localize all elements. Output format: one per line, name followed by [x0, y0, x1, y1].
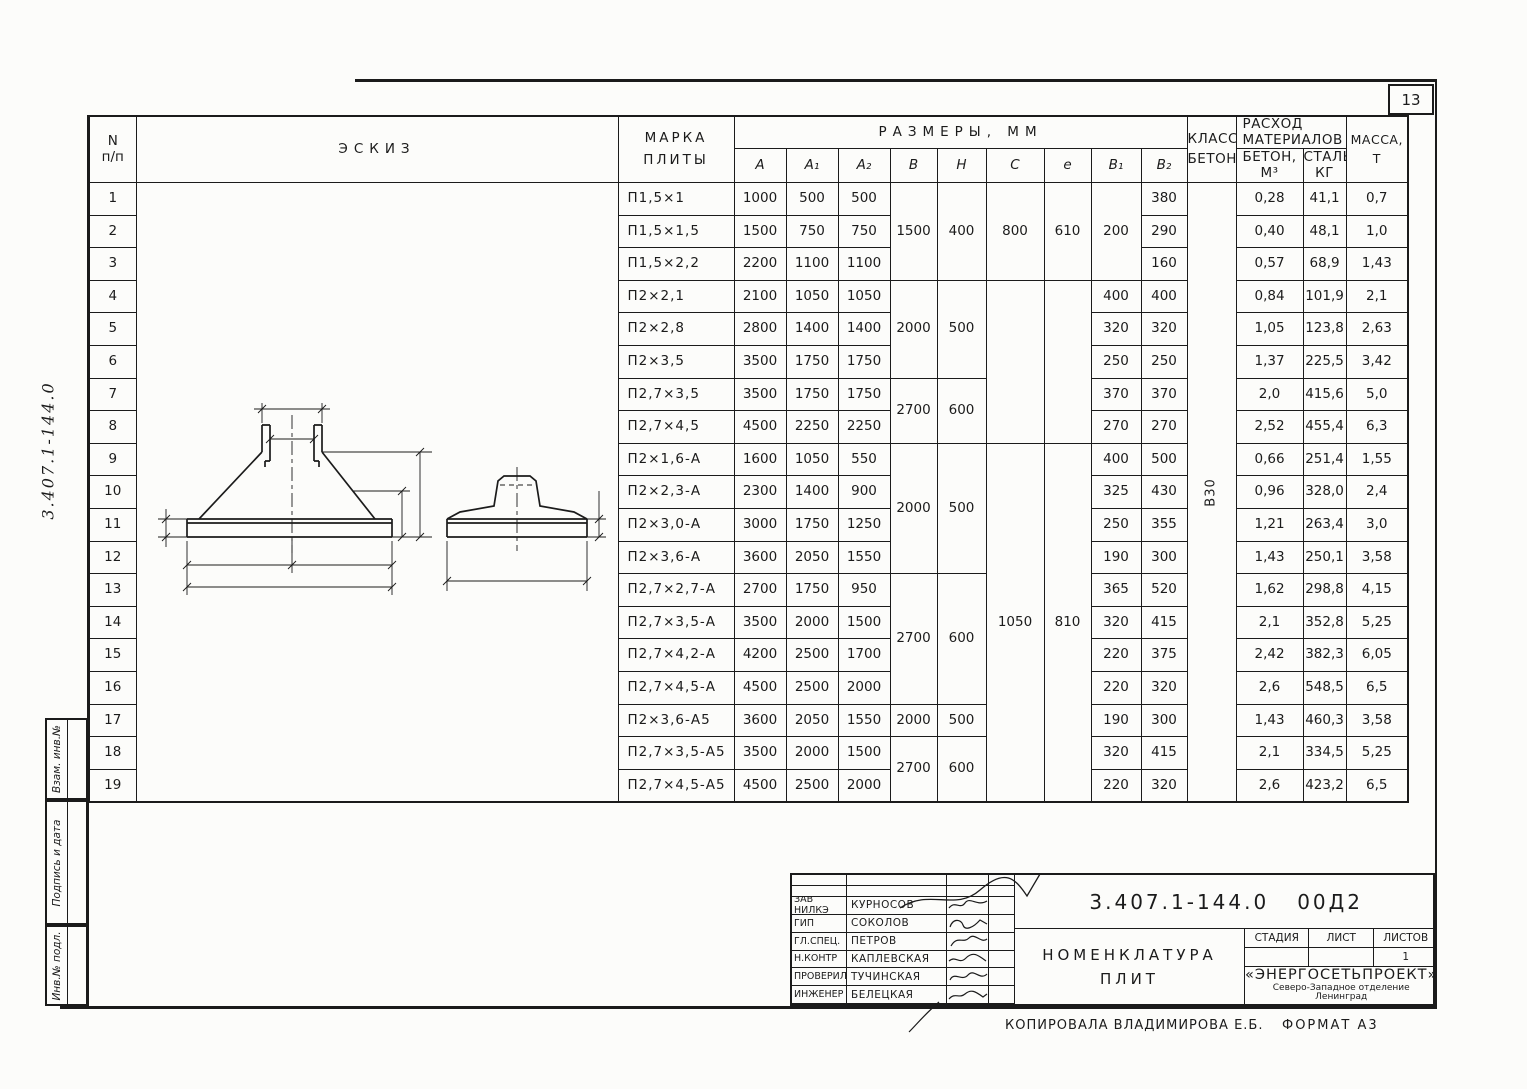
- cell-e: [1044, 280, 1091, 443]
- cell-n: 11: [89, 508, 136, 541]
- signature-role: Зав НИЛКЭ: [792, 897, 847, 915]
- signature-icon: [947, 933, 989, 951]
- header-sketch: Эскиз: [136, 116, 618, 183]
- cell-B2: 300: [1141, 541, 1187, 574]
- cell-A2: 550: [838, 443, 890, 476]
- cell-steel: 298,8: [1303, 574, 1346, 607]
- signature-icon: [947, 915, 989, 933]
- document-number: 3.407.1-144.0 00Д2: [1015, 875, 1437, 929]
- signature-icon: [947, 951, 989, 969]
- cell-B2: 320: [1141, 671, 1187, 704]
- header-mark-line2: плиты: [619, 153, 734, 169]
- cell-n: 17: [89, 704, 136, 737]
- cell-conc: 2,0: [1236, 378, 1303, 411]
- signature-role: ГИП: [792, 915, 847, 933]
- cell-B2: 500: [1141, 443, 1187, 476]
- stamp-label-cell: Инв.№ подл.: [47, 927, 68, 1004]
- cell-conc: 0,66: [1236, 443, 1303, 476]
- cell-n: 4: [89, 280, 136, 313]
- side-code: 3.407.1-144.0: [8, 360, 88, 540]
- empty-cell: [989, 915, 1014, 933]
- signature-role: Н.контр: [792, 951, 847, 969]
- stamp-label: Взам. инв.№: [51, 725, 63, 793]
- cell-H: 500: [937, 280, 986, 378]
- format-note: Формат А3: [1282, 1018, 1379, 1033]
- signature-icon: [947, 897, 989, 915]
- stamp-empty-cell: [68, 720, 86, 798]
- cell-A2: 1500: [838, 737, 890, 770]
- cell-steel: 548,5: [1303, 671, 1346, 704]
- cell-n: 15: [89, 639, 136, 672]
- empty-cell: [847, 886, 947, 897]
- cell-B2: 430: [1141, 476, 1187, 509]
- cell-B2: 415: [1141, 737, 1187, 770]
- cell-n: 9: [89, 443, 136, 476]
- stamp-box-vzam: Взам. инв.№: [45, 718, 88, 800]
- cell-steel: 352,8: [1303, 606, 1346, 639]
- cell-conc: 2,1: [1236, 737, 1303, 770]
- cell-mass: 6,3: [1346, 411, 1408, 444]
- cell-e: 610: [1044, 183, 1091, 281]
- header-consumption-line1: Расход: [1237, 117, 1346, 133]
- cell-conc: 0,28: [1236, 183, 1303, 216]
- cell-mark: П1,5×2,2: [618, 248, 734, 281]
- cell-A1: 500: [786, 183, 838, 216]
- cell-A1: 1750: [786, 378, 838, 411]
- sheet-value: [1309, 948, 1373, 966]
- header-consumption-line2: материалов: [1237, 133, 1346, 149]
- cell-B1: 220: [1091, 769, 1141, 802]
- cell-conc: 1,05: [1236, 313, 1303, 346]
- cell-conc: 2,6: [1236, 769, 1303, 802]
- cell-mass: 6,5: [1346, 671, 1408, 704]
- drawing-title-line2: плит: [1100, 970, 1159, 988]
- cell-A1: 1100: [786, 248, 838, 281]
- header-col-B2: В₂: [1141, 149, 1187, 183]
- cell-mass: 3,58: [1346, 541, 1408, 574]
- cell-A2: 950: [838, 574, 890, 607]
- cell-A2: 900: [838, 476, 890, 509]
- cell-H: 500: [937, 443, 986, 573]
- header-mass-line1: Масса,: [1347, 133, 1408, 147]
- cell-A: 2300: [734, 476, 786, 509]
- cell-A: 4500: [734, 769, 786, 802]
- cell-conc: 1,21: [1236, 508, 1303, 541]
- cell-A1: 1400: [786, 313, 838, 346]
- cell-B: 2000: [890, 704, 937, 737]
- frame-top-line: [355, 79, 1437, 82]
- cell-A1: 2000: [786, 606, 838, 639]
- cell-C: [986, 280, 1044, 443]
- signature-icon: [947, 986, 989, 1004]
- cell-mark: П2,7×3,5-А5: [618, 737, 734, 770]
- cell-B1: 220: [1091, 671, 1141, 704]
- header-class-line1: Класс: [1188, 132, 1236, 148]
- cell-A1: 2050: [786, 541, 838, 574]
- empty-cell: [947, 875, 989, 886]
- cell-A2: 2000: [838, 769, 890, 802]
- cell-A1: 2500: [786, 769, 838, 802]
- cell-mark: П2,7×3,5: [618, 378, 734, 411]
- cell-B2: 290: [1141, 215, 1187, 248]
- header-steel: Сталь, кг: [1303, 149, 1346, 183]
- document-code: 3.407.1-144.0: [1089, 890, 1269, 914]
- empty-cell: [989, 968, 1014, 986]
- cell-conc: 0,96: [1236, 476, 1303, 509]
- plate-nomenclature-table: N п/п Эскиз Марка плиты Размеры, мм Клас…: [88, 115, 1409, 803]
- empty-cell: [989, 886, 1014, 897]
- cell-B1: 400: [1091, 443, 1141, 476]
- cell-H: 400: [937, 183, 986, 281]
- cell-mark: П2,7×4,5-А: [618, 671, 734, 704]
- stage-value-row: 1: [1245, 948, 1437, 967]
- cell-mark: П2×2,1: [618, 280, 734, 313]
- cell-B: 2000: [890, 443, 937, 573]
- cell-B2: 300: [1141, 704, 1187, 737]
- cell-mass: 0,7: [1346, 183, 1408, 216]
- cell-mass: 3,0: [1346, 508, 1408, 541]
- cell-A2: 1500: [838, 606, 890, 639]
- frame-bottom-line: [60, 1006, 1437, 1009]
- cell-B1: 190: [1091, 541, 1141, 574]
- cell-steel: 334,5: [1303, 737, 1346, 770]
- cell-n: 2: [89, 215, 136, 248]
- cell-B2: 355: [1141, 508, 1187, 541]
- cell-conc: 2,52: [1236, 411, 1303, 444]
- cell-e: 810: [1044, 443, 1091, 802]
- cell-steel: 41,1: [1303, 183, 1346, 216]
- signature-name: Соколов: [847, 915, 947, 933]
- cell-B1: 320: [1091, 737, 1141, 770]
- cell-conc: 1,43: [1236, 704, 1303, 737]
- title-block-right: 3.407.1-144.0 00Д2 Номенклатура плит Ста…: [1015, 875, 1437, 1004]
- signature-name: Тучинская: [847, 968, 947, 986]
- cell-B2: 270: [1141, 411, 1187, 444]
- cell-mark: П2×2,8: [618, 313, 734, 346]
- header-num-line2: п/п: [90, 150, 136, 166]
- cell-n: 10: [89, 476, 136, 509]
- cell-A1: 2000: [786, 737, 838, 770]
- cell-conc: 2,6: [1236, 671, 1303, 704]
- cell-B1: 370: [1091, 378, 1141, 411]
- cell-B2: 370: [1141, 378, 1187, 411]
- empty-cell: [989, 933, 1014, 951]
- cell-A2: 500: [838, 183, 890, 216]
- cell-B: 2700: [890, 574, 937, 704]
- cell-A1: 2500: [786, 671, 838, 704]
- header-col-C: С: [986, 149, 1044, 183]
- cell-A: 3600: [734, 541, 786, 574]
- empty-cell: [989, 875, 1014, 886]
- cell-conc: 0,84: [1236, 280, 1303, 313]
- cell-mark: П1,5×1: [618, 183, 734, 216]
- organization-name: «ЭНЕРГОСЕТЬПРОЕКТ»: [1245, 968, 1437, 984]
- table-row: 1: [89, 183, 1408, 216]
- cell-A2: 2250: [838, 411, 890, 444]
- cell-B2: 320: [1141, 313, 1187, 346]
- cell-B: 2000: [890, 280, 937, 378]
- stamp-label-cell: Взам. инв.№: [47, 720, 68, 798]
- empty-cell: [847, 875, 947, 886]
- cell-steel: 48,1: [1303, 215, 1346, 248]
- cell-B1: 250: [1091, 346, 1141, 379]
- cell-A1: 1750: [786, 574, 838, 607]
- cell-mark: П2,7×4,5: [618, 411, 734, 444]
- organization-box: «ЭНЕРГОСЕТЬПРОЕКТ» Северо-Западное отдел…: [1245, 967, 1437, 1004]
- cell-A2: 1550: [838, 704, 890, 737]
- header-col-B: В: [890, 149, 937, 183]
- header-col-H: Н: [937, 149, 986, 183]
- empty-cell: [792, 886, 847, 897]
- empty-cell: [792, 875, 847, 886]
- cell-A: 2800: [734, 313, 786, 346]
- cell-mass: 6,05: [1346, 639, 1408, 672]
- document-code2: 00Д2: [1297, 890, 1363, 914]
- cell-A2: 1050: [838, 280, 890, 313]
- cell-mark: П2,7×4,5-А5: [618, 769, 734, 802]
- header-consumption: Расход материалов: [1236, 116, 1346, 149]
- stage-header-row: Стадия Лист Листов: [1245, 929, 1437, 948]
- cell-C: 800: [986, 183, 1044, 281]
- cell-B2: 375: [1141, 639, 1187, 672]
- cell-n: 1: [89, 183, 136, 216]
- cell-n: 16: [89, 671, 136, 704]
- cell-A: 3500: [734, 346, 786, 379]
- signature-role: Проверил: [792, 968, 847, 986]
- header-sizes: Размеры, мм: [734, 116, 1187, 149]
- cell-B1: 320: [1091, 606, 1141, 639]
- page-number-box: 13: [1388, 84, 1434, 115]
- signature-name: Белецкая: [847, 986, 947, 1004]
- header-col-A2: A₂: [838, 149, 890, 183]
- cell-B2: 250: [1141, 346, 1187, 379]
- sketch-cell: [136, 183, 618, 802]
- cell-conc: 2,42: [1236, 639, 1303, 672]
- cell-n: 14: [89, 606, 136, 639]
- cell-mass: 5,25: [1346, 606, 1408, 639]
- cell-B1: 365: [1091, 574, 1141, 607]
- cell-mass: 2,63: [1346, 313, 1408, 346]
- cell-steel: 123,8: [1303, 313, 1346, 346]
- cell-A2: 1750: [838, 346, 890, 379]
- cell-A: 3600: [734, 704, 786, 737]
- cell-A1: 750: [786, 215, 838, 248]
- header-concrete-line2: м³: [1237, 166, 1303, 182]
- cell-A: 4500: [734, 671, 786, 704]
- cell-A2: 2000: [838, 671, 890, 704]
- cell-B2: 160: [1141, 248, 1187, 281]
- cell-mass: 5,25: [1346, 737, 1408, 770]
- sheets-value: 1: [1374, 948, 1437, 966]
- cell-mass: 1,55: [1346, 443, 1408, 476]
- signature-role: Инженер: [792, 986, 847, 1004]
- sheets-header: Листов: [1374, 929, 1437, 947]
- cell-conc: 2,1: [1236, 606, 1303, 639]
- plate-table-body: 1: [89, 183, 1408, 802]
- cell-B1: 200: [1091, 183, 1141, 281]
- cell-cls: В30: [1187, 183, 1236, 802]
- cell-n: 5: [89, 313, 136, 346]
- cell-n: 3: [89, 248, 136, 281]
- cell-conc: 0,40: [1236, 215, 1303, 248]
- cell-steel: 460,3: [1303, 704, 1346, 737]
- header-concrete-line1: Бетон,: [1237, 150, 1303, 166]
- header-num-line1: N: [90, 134, 136, 150]
- title-block: Зав НИЛКЭ Курносов ГИП Соколов Гл.спец. …: [790, 873, 1435, 1006]
- cell-A2: 1100: [838, 248, 890, 281]
- cell-mark: П2×3,6-А: [618, 541, 734, 574]
- header-steel-line1: Сталь,: [1304, 150, 1346, 166]
- cell-steel: 101,9: [1303, 280, 1346, 313]
- cell-C: 1050: [986, 443, 1044, 802]
- empty-cell: [947, 886, 989, 897]
- signature-icon: [947, 968, 989, 986]
- cell-B2: 520: [1141, 574, 1187, 607]
- cell-conc: 1,62: [1236, 574, 1303, 607]
- header-mark-line1: Марка: [619, 131, 734, 147]
- cell-A: 2200: [734, 248, 786, 281]
- header-col-e: е: [1044, 149, 1091, 183]
- cell-A2: 1700: [838, 639, 890, 672]
- cell-mark: П2×3,5: [618, 346, 734, 379]
- header-col-A: A: [734, 149, 786, 183]
- cell-mark: П2×2,3-А: [618, 476, 734, 509]
- cell-n: 6: [89, 346, 136, 379]
- cell-n: 7: [89, 378, 136, 411]
- empty-cell: [989, 986, 1014, 1004]
- cell-mark: П2×3,6-А5: [618, 704, 734, 737]
- cell-A: 3500: [734, 737, 786, 770]
- header-steel-line2: кг: [1304, 166, 1346, 182]
- stage-header: Стадия: [1245, 929, 1309, 947]
- cell-A1: 1750: [786, 346, 838, 379]
- cell-mass: 1,43: [1346, 248, 1408, 281]
- cell-A: 1500: [734, 215, 786, 248]
- header-col-A1: A₁: [786, 149, 838, 183]
- header-col-B1: В₁: [1091, 149, 1141, 183]
- cell-H: 600: [937, 574, 986, 704]
- cell-steel: 423,2: [1303, 769, 1346, 802]
- frame-right-line: [1435, 82, 1437, 1008]
- cell-B1: 270: [1091, 411, 1141, 444]
- cell-steel: 328,0: [1303, 476, 1346, 509]
- cell-A1: 2250: [786, 411, 838, 444]
- header-class-line2: бетона: [1188, 152, 1236, 168]
- cell-n: 18: [89, 737, 136, 770]
- cell-conc: 1,43: [1236, 541, 1303, 574]
- organization-city: Ленинград: [1315, 993, 1367, 1003]
- cell-n: 8: [89, 411, 136, 444]
- cell-H: 600: [937, 378, 986, 443]
- stamp-empty-cell: [68, 927, 86, 1004]
- cell-mark: П2×3,0-А: [618, 508, 734, 541]
- stamp-empty-cell: [68, 802, 86, 923]
- cell-A2: 1400: [838, 313, 890, 346]
- cell-B: 2700: [890, 737, 937, 802]
- cell-A1: 1050: [786, 443, 838, 476]
- cell-A: 3500: [734, 606, 786, 639]
- cell-steel: 382,3: [1303, 639, 1346, 672]
- cell-mark: П2,7×2,7-А: [618, 574, 734, 607]
- stage-section: Стадия Лист Листов 1 «ЭНЕРГОСЕТЬПРОЕКТ» …: [1245, 929, 1437, 1004]
- cell-steel: 251,4: [1303, 443, 1346, 476]
- cell-conc: 0,57: [1236, 248, 1303, 281]
- cell-A2: 1550: [838, 541, 890, 574]
- cell-H: 600: [937, 737, 986, 802]
- cell-steel: 225,5: [1303, 346, 1346, 379]
- signature-name: Каплевская: [847, 951, 947, 969]
- cell-steel: 415,6: [1303, 378, 1346, 411]
- header-concrete: Бетон, м³: [1236, 149, 1303, 183]
- copied-by-note: Копировала Владимирова Е.Б.: [1005, 1018, 1263, 1033]
- stamp-box-inv: Инв.№ подл.: [45, 925, 88, 1006]
- cell-B1: 250: [1091, 508, 1141, 541]
- cell-B2: 400: [1141, 280, 1187, 313]
- cell-A2: 1250: [838, 508, 890, 541]
- cell-A1: 1750: [786, 508, 838, 541]
- cell-n: 19: [89, 769, 136, 802]
- cell-A1: 1400: [786, 476, 838, 509]
- stamp-box-podpis: Подпись и дата: [45, 800, 88, 925]
- cell-mass: 6,5: [1346, 769, 1408, 802]
- cell-B: 2700: [890, 378, 937, 443]
- cell-mark: П2×1,6-А: [618, 443, 734, 476]
- cell-steel: 250,1: [1303, 541, 1346, 574]
- header-mark: Марка плиты: [618, 116, 734, 183]
- signature-name: Курносов: [847, 897, 947, 915]
- cell-mark: П2,7×4,2-А: [618, 639, 734, 672]
- cell-A: 3000: [734, 508, 786, 541]
- cell-A: 1600: [734, 443, 786, 476]
- cell-mass: 1,0: [1346, 215, 1408, 248]
- cell-steel: 263,4: [1303, 508, 1346, 541]
- cell-A: 4500: [734, 411, 786, 444]
- cell-conc: 1,37: [1236, 346, 1303, 379]
- signature-name: Петров: [847, 933, 947, 951]
- cell-A1: 2500: [786, 639, 838, 672]
- cell-A: 4200: [734, 639, 786, 672]
- cell-B1: 220: [1091, 639, 1141, 672]
- header-mass: Масса, т: [1346, 116, 1408, 183]
- cell-A1: 1050: [786, 280, 838, 313]
- drawing-title-line1: Номенклатура: [1042, 946, 1217, 964]
- stamp-label: Инв.№ подл.: [51, 931, 63, 1000]
- cell-B1: 190: [1091, 704, 1141, 737]
- page-number: 13: [1401, 91, 1420, 109]
- signature-grid: Зав НИЛКЭ Курносов ГИП Соколов Гл.спец. …: [792, 875, 1015, 1004]
- stamp-label-cell: Подпись и дата: [47, 802, 68, 923]
- cell-mark: П2,7×3,5-А: [618, 606, 734, 639]
- drawing-sheet: 13 3.407.1-144.0 Взам. инв.№ Подпись и д…: [0, 0, 1527, 1089]
- side-code-text: 3.407.1-144.0: [39, 381, 58, 519]
- header-mass-line2: т: [1347, 152, 1408, 166]
- cell-A: 3500: [734, 378, 786, 411]
- cell-mass: 4,15: [1346, 574, 1408, 607]
- cell-mass: 2,4: [1346, 476, 1408, 509]
- drawing-title: Номенклатура плит: [1015, 929, 1245, 1004]
- cell-B1: 320: [1091, 313, 1141, 346]
- cell-mass: 3,58: [1346, 704, 1408, 737]
- signature-role: Гл.спец.: [792, 933, 847, 951]
- plate-sketch: [142, 391, 612, 636]
- cell-B1: 325: [1091, 476, 1141, 509]
- cell-mass: 5,0: [1346, 378, 1408, 411]
- header-num: N п/п: [89, 116, 136, 183]
- cell-B: 1500: [890, 183, 937, 281]
- cell-steel: 455,4: [1303, 411, 1346, 444]
- cell-n: 13: [89, 574, 136, 607]
- empty-cell: [989, 897, 1014, 915]
